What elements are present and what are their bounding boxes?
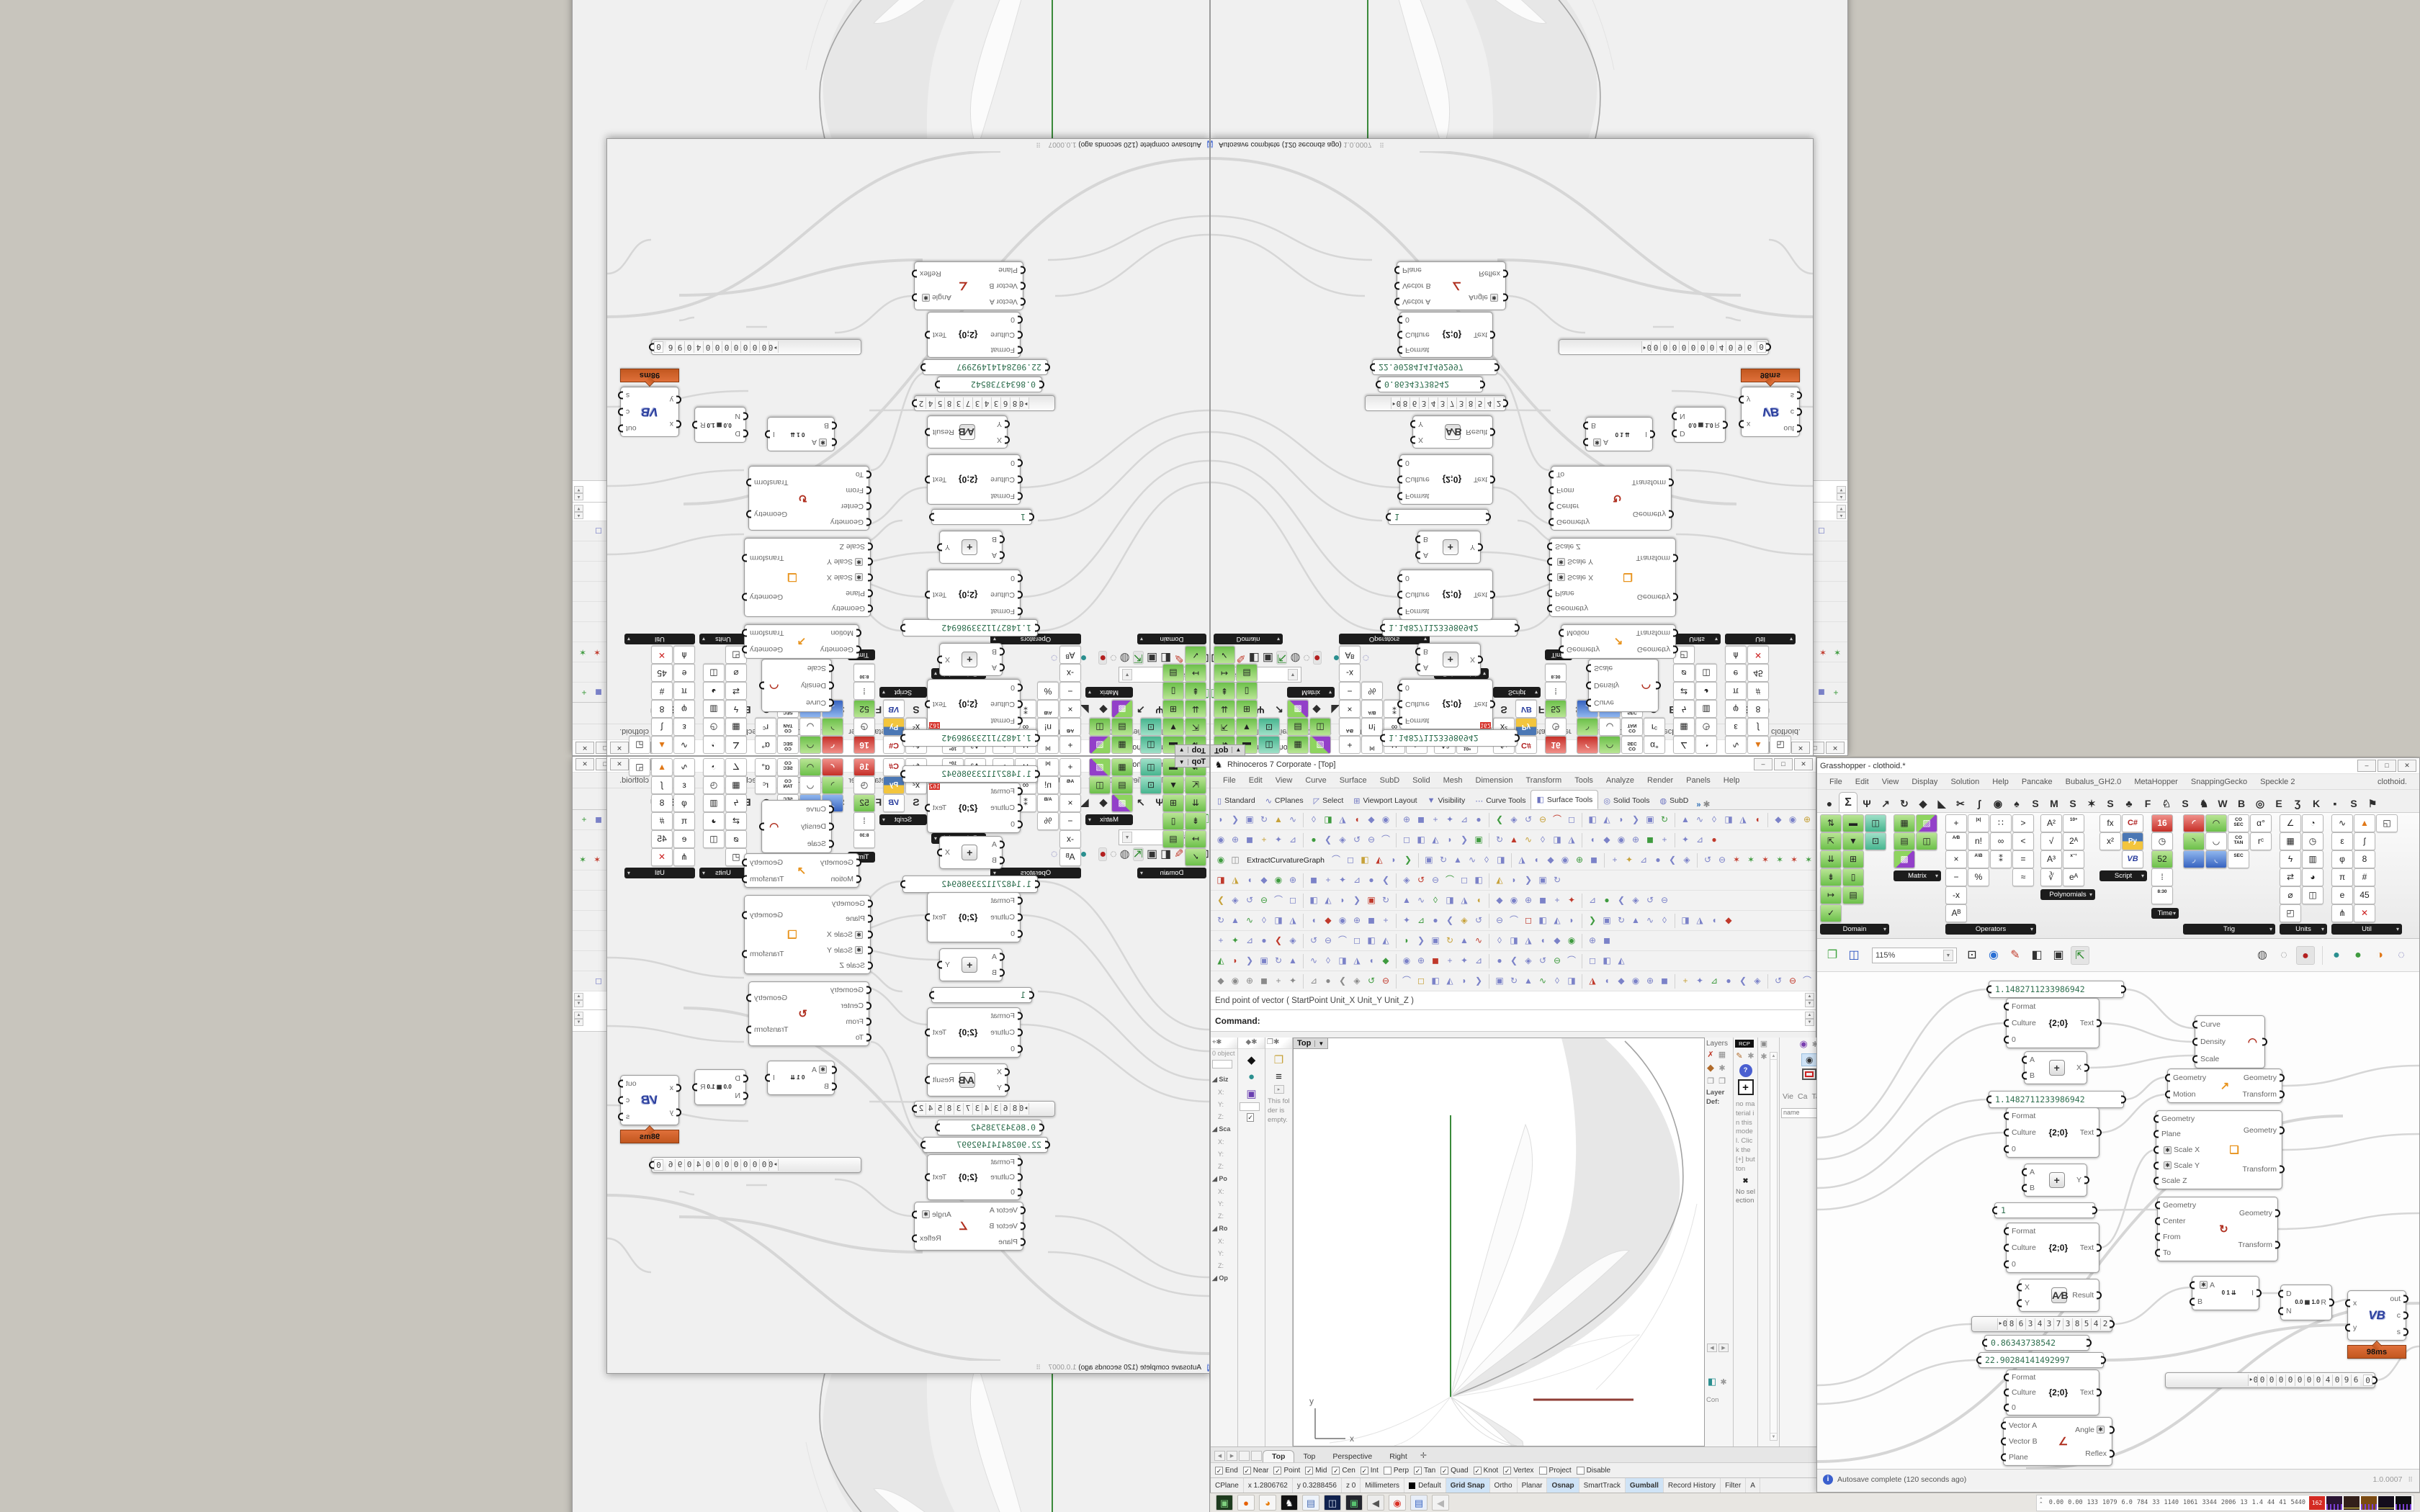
gh-component-button[interactable]: 45 (2354, 886, 2375, 904)
menu-item-analyze[interactable]: Analyze (1600, 776, 1641, 785)
gh-input-to[interactable]: To (1556, 470, 1564, 479)
camera-icon[interactable]: ◉ (1801, 1053, 1817, 1066)
gh-component-button[interactable]: A² (2040, 814, 2062, 832)
toolbar-button[interactable]: ↺ (1365, 974, 1379, 988)
gh-input-vector-a[interactable]: Vector A (990, 297, 1018, 306)
gh-component-button[interactable]: -x (1339, 664, 1361, 682)
toolbar-button[interactable]: ◈ (1229, 894, 1242, 907)
toolbar-button[interactable]: ◊ (1708, 813, 1721, 827)
gh-component-button[interactable]: ◜ (822, 758, 843, 776)
status-default[interactable]: Default (1404, 1478, 1446, 1493)
toolbar-button[interactable]: ◉ (1379, 813, 1393, 827)
gh-component-button[interactable]: -x (1945, 886, 1967, 904)
gh-input-0[interactable]: 0 (1010, 1188, 1015, 1197)
gh-input-curve[interactable]: Curve (806, 805, 826, 814)
gh-canvas[interactable]: 1.1482711233986942FormatCulture0Text{2;0… (607, 149, 1209, 648)
gh-input-b[interactable]: B (1591, 422, 1596, 431)
toolbar-button[interactable]: ↻ (1443, 934, 1457, 948)
toolbar-button[interactable]: ▣ (1472, 833, 1486, 847)
gh-component-button[interactable]: % (1968, 868, 1989, 886)
gh-toolbar-icon[interactable]: ◍ (1120, 652, 1130, 664)
command-scroll-arrows[interactable]: ▲▼ (1837, 486, 1846, 500)
ribbon-group-label-script[interactable]: Script▾ (1493, 687, 1541, 698)
toolbar-tab-visibility[interactable]: ▼Visibility (1422, 792, 1471, 809)
gh-component-button[interactable]: ▲ (651, 758, 673, 776)
gh-component-button[interactable]: ▥ (2302, 850, 2323, 868)
toolbar-button[interactable]: ↻ (1436, 853, 1450, 867)
menu-item-file[interactable]: File (1823, 778, 1849, 786)
toolbar-button[interactable]: ✶ (1758, 853, 1772, 867)
toolbar-button[interactable]: ◉ (1214, 853, 1228, 867)
gh-input-vector-b[interactable]: Vector B (2009, 1437, 2038, 1446)
toolbar-button[interactable]: ⊕ (1522, 894, 1536, 907)
gh-input-culture[interactable]: Culture (990, 330, 1015, 339)
menu-item-transform[interactable]: Transform (1520, 776, 1569, 785)
gh-toolbar-icon[interactable]: ❐ (1823, 946, 1842, 965)
gh-canvas[interactable]: 1.1482711233986942FormatCulture0Text{2;0… (1817, 972, 2419, 1469)
toolbar-button[interactable]: ▣ (1365, 894, 1379, 907)
gh-category-tab-8[interactable]: ʃ (1970, 795, 1989, 812)
gh-input-from[interactable]: From (1556, 486, 1574, 495)
toolbar-button[interactable]: ◆ (1365, 813, 1379, 827)
gh-component-button[interactable]: × (1339, 700, 1361, 718)
toolbar-button[interactable]: ◗ (1336, 894, 1350, 907)
gh-component-button[interactable]: 2ᴬ (2063, 832, 2084, 850)
gh-component-button[interactable]: ◱ (629, 758, 650, 776)
gh-component-button[interactable]: CO TAN (1621, 718, 1643, 736)
gh-component-button[interactable]: ✓ (1214, 646, 1235, 664)
gh-output-c[interactable]: c (626, 1096, 629, 1104)
gh-component-button[interactable]: − (1059, 682, 1081, 700)
toolbar-button[interactable]: ⌒ (1329, 853, 1343, 867)
gh-component-button[interactable]: ⊡ (1140, 776, 1162, 794)
gh-component-button[interactable]: ∠ (725, 736, 747, 754)
gh-component-button[interactable]: 52 (1545, 700, 1567, 718)
toolbar-button[interactable]: ↻ (1272, 954, 1286, 968)
gh-input-x[interactable]: x (670, 1084, 673, 1092)
gh-component-button[interactable]: ◔ (703, 736, 725, 754)
gh-input-geometry[interactable]: Geometry (832, 604, 865, 613)
toolbar-button[interactable]: ⊖ (1429, 873, 1443, 887)
toolbar-button[interactable]: ⊿ (1243, 934, 1257, 948)
gh-input-format[interactable]: Format (1405, 716, 1429, 725)
ribbon-group-label-operators[interactable]: Operators▾ (1945, 924, 2036, 935)
gh-component-button[interactable]: + (1059, 736, 1081, 754)
gh-component-button[interactable]: % (1037, 682, 1059, 700)
gh-component-button[interactable]: ⋔ (2331, 904, 2353, 922)
gh-component-button[interactable]: ◫ (1089, 718, 1111, 736)
gh-input-density[interactable]: Density (801, 681, 826, 690)
gh-output-angle[interactable]: Angle✱ (1469, 294, 1500, 302)
close-button[interactable]: ✕ (1826, 742, 1845, 754)
gh-input-x[interactable]: x (670, 420, 673, 428)
gh-input-n[interactable]: N (735, 1092, 740, 1100)
gh-output-y[interactable]: Y (945, 960, 950, 969)
gh-component-button[interactable]: ε (1725, 718, 1747, 736)
toolbar-button[interactable]: + (1429, 813, 1443, 827)
toolbar-button[interactable]: ◻ (1522, 914, 1536, 927)
gh-component-button[interactable]: ◱ (2376, 814, 2398, 832)
toolbar-button[interactable]: ⊖ (1493, 914, 1507, 927)
toolbar-button[interactable]: ◻ (1400, 833, 1414, 847)
display-mode-icon[interactable]: ◧✱ (1706, 1375, 1729, 1389)
toolbar-button[interactable]: ↺ (1350, 833, 1364, 847)
gh-component-button[interactable]: ✕ (651, 848, 673, 866)
gh-output-reflex[interactable]: Reflex (920, 270, 941, 279)
gh-component-button[interactable]: CO TAN (2228, 832, 2249, 850)
osnap-toggle-int[interactable]: ✓Int (1361, 1467, 1379, 1475)
ribbon-group-label-domain[interactable]: Domain▾ (1137, 634, 1206, 644)
gh-panel-node[interactable]: 0.86343738542 (937, 1120, 1042, 1135)
toolbar-button[interactable]: ✶ (576, 853, 590, 867)
gh-component-button[interactable]: e (673, 664, 695, 682)
gh-component-button[interactable]: ▨ (1916, 814, 1937, 832)
gh-component-button[interactable]: ◫ (1140, 758, 1162, 776)
gh-output-transform[interactable]: Transform (750, 629, 784, 638)
menu-item-pancake[interactable]: Pancake (2015, 778, 2059, 786)
gh-input-a[interactable]: ✱A (2197, 1281, 2215, 1290)
toolbar-button[interactable]: ⊖ (1379, 974, 1393, 988)
new-layer-icon[interactable]: ❐ (1706, 1076, 1716, 1086)
gh-category-tab-19[interactable]: S (2176, 795, 2195, 812)
toolbar-button[interactable]: ⌒ (1336, 934, 1350, 948)
rhino-command-prompt[interactable]: Command: ▲▼ (1211, 1010, 1816, 1032)
gh-component-button[interactable]: ✓ (1185, 646, 1206, 664)
gh-component-button[interactable]: 52 (2151, 850, 2173, 868)
gh-component-button[interactable]: ⇄ (725, 682, 747, 700)
toolbar-button[interactable]: ⊕ (1586, 934, 1600, 948)
gh-component-button[interactable]: 10⁸ (2063, 814, 2084, 832)
gh-component-button[interactable]: ✕ (1747, 646, 1769, 664)
gh-input-plane[interactable]: Plane (2161, 1130, 2181, 1138)
toolbar-button[interactable]: ◫ (1229, 853, 1242, 867)
toolbar-button[interactable]: ◨ (1272, 914, 1286, 927)
gh-component-button[interactable]: ◔ (2302, 814, 2323, 832)
gh-component-button[interactable]: ε (2331, 832, 2353, 850)
command-scroll-arrows[interactable]: ▲▼ (1805, 1012, 1814, 1026)
toolbar-button[interactable]: + (1379, 914, 1393, 927)
gh-input-center[interactable]: Center (841, 1002, 864, 1010)
gh-component-button[interactable]: 16 (853, 736, 875, 754)
gh-component-button[interactable]: ↦ (1820, 886, 1842, 904)
gh-component-button[interactable]: ⁞ (853, 812, 875, 830)
gh-input-scale-y[interactable]: ✱Scale Y (827, 557, 865, 566)
gh-output-text[interactable]: Text (1474, 475, 1487, 484)
toolbar-button[interactable]: ◈ (1458, 914, 1471, 927)
gh-output-i[interactable]: I (1645, 430, 1647, 438)
toolbar-button[interactable]: ◖ (1243, 873, 1257, 887)
gh-input-0[interactable]: 0 (1010, 683, 1015, 692)
toolbar-button[interactable]: ◻ (592, 524, 606, 538)
gh-component-button[interactable]: ⊞ (1236, 700, 1258, 718)
gh-output-out[interactable]: out (1783, 424, 1794, 433)
gh-input-0[interactable]: 0 (2012, 1035, 2016, 1044)
gh-output-r[interactable]: R (2321, 1298, 2326, 1307)
gh-toolbar-icon[interactable]: ● (1080, 848, 1088, 860)
gh-component-button[interactable]: − (1945, 868, 1967, 886)
minimize-button[interactable]: – (2357, 760, 2376, 772)
gh-component-button[interactable]: 8 (651, 700, 673, 718)
panel-header-icon[interactable]: ⌖✱ (1211, 1038, 1237, 1049)
toolbar-button[interactable]: ↻ (1658, 813, 1672, 827)
toolbar-button[interactable]: ✶ (1787, 853, 1801, 867)
gh-component-button[interactable]: ◫ (703, 830, 725, 848)
gh-output-transform[interactable]: Transform (750, 554, 784, 562)
gh-input-format[interactable]: Format (2012, 1002, 2035, 1011)
gh-number-slider[interactable]: ‣086343738542 (914, 395, 1055, 411)
gh-output-text[interactable]: Text (933, 700, 946, 708)
ribbon-group-label-util[interactable]: Util▾ (1725, 634, 1796, 644)
toolbar-button[interactable]: ● (1722, 974, 1736, 988)
gh-input-culture[interactable]: Culture (990, 913, 1015, 922)
toolbar-button[interactable]: ◉ (1565, 934, 1579, 948)
gh-output-angle[interactable]: Angle✱ (920, 294, 951, 302)
gh-input-format[interactable]: Format (1405, 346, 1429, 354)
toolbar-button[interactable]: ∿ (1465, 853, 1479, 867)
gh-input-to[interactable]: To (856, 1033, 864, 1042)
gh-component-button[interactable]: ✓ (1185, 848, 1206, 866)
gh-input-scale-x[interactable]: ✱Scale X (2161, 1146, 2200, 1154)
toolbar-button[interactable]: ◨ (1565, 974, 1579, 988)
gh-input-format[interactable]: Format (991, 346, 1015, 354)
gh-input-format[interactable]: Format (2012, 1227, 2035, 1236)
gh-category-tab-3[interactable]: ↗ (1876, 795, 1895, 812)
viewport-title-dropdown-icon[interactable]: ▼ (1232, 747, 1241, 754)
gh-output-result[interactable]: Result (933, 428, 954, 436)
gh-input-0[interactable]: 0 (2012, 1260, 2016, 1269)
gh-component-button[interactable]: ◷ (853, 718, 875, 736)
ribbon-group-label-script[interactable]: Script▾ (879, 687, 927, 698)
gh-input-from[interactable]: From (2163, 1233, 2181, 1241)
gh-input-motion[interactable]: Motion (830, 875, 853, 883)
gh-component-button[interactable]: ⇱ (1185, 776, 1206, 794)
osnap-toggle-disable[interactable]: Disable (1577, 1467, 1610, 1475)
gh-output-text[interactable]: Text (2080, 1388, 2094, 1397)
toolbar-button[interactable]: ↻ (1551, 873, 1564, 887)
gh-component-button[interactable]: ⇟ (1820, 868, 1842, 886)
toolbar-button[interactable]: ◭ (1429, 833, 1443, 847)
gh-panel-node[interactable]: 1 (1388, 509, 1489, 525)
gh-panel-node[interactable]: 22.90284141492997 (923, 1137, 1048, 1153)
gh-category-tab-18[interactable]: ♘ (2157, 795, 2176, 812)
gh-input-b[interactable]: B (992, 856, 997, 865)
toolbar-button[interactable]: + (1608, 853, 1621, 867)
toolbar-button[interactable]: ❮ (1322, 833, 1335, 847)
gh-category-tab-23[interactable]: ◎ (2251, 795, 2269, 812)
toolbar-button[interactable]: ◈ (1507, 813, 1521, 827)
gh-output-text[interactable]: Text (933, 475, 946, 484)
toolbar-button[interactable]: ❯ (1522, 873, 1536, 887)
gh-component-button[interactable]: ▦ (1673, 718, 1695, 736)
gh-input-culture[interactable]: Culture (2012, 1243, 2036, 1252)
gh-component-button[interactable]: 8:30 (2151, 886, 2173, 904)
toolbar-button[interactable]: ◭ (1493, 873, 1507, 887)
gh-input-d[interactable]: D (2286, 1290, 2292, 1298)
gh-output-out[interactable]: out (626, 424, 637, 433)
gh-toolbar-icon[interactable]: ◌ (2392, 946, 2411, 965)
toolbar-button[interactable]: + (1272, 974, 1286, 988)
gh-output-geometry[interactable]: Geometry (1637, 593, 1670, 601)
toolbar-button[interactable]: ∿ (1286, 813, 1300, 827)
toolbar-button[interactable]: ◈ (1350, 974, 1364, 988)
gh-component-button[interactable]: ⁞ (853, 682, 875, 700)
gh-component-button[interactable]: π (673, 812, 695, 830)
toolbar-button[interactable]: ◖ (1365, 954, 1379, 968)
toolbar-button[interactable]: ❮ (1214, 894, 1228, 907)
toolbar-button[interactable]: ✦ (1622, 853, 1636, 867)
toolbar-button[interactable]: ◖ (1307, 914, 1321, 927)
toolbar-button[interactable]: ◧ (1365, 934, 1379, 948)
toolbar-button[interactable]: ▲ (1286, 954, 1300, 968)
toolbar-button[interactable]: ❯ (1629, 813, 1643, 827)
gh-component-button[interactable]: |x| (1968, 814, 1989, 832)
gh-input-a[interactable]: ✱A (812, 1066, 829, 1074)
toolbar-button[interactable]: ◖ (1708, 914, 1721, 927)
toolbar-button[interactable]: ▣ (1600, 914, 1614, 927)
sphere-icon[interactable]: ● (1238, 1071, 1265, 1083)
gh-component-button[interactable]: ▤ (1894, 832, 1915, 850)
ribbon-group-label-script[interactable]: Script▾ (2099, 870, 2147, 881)
gh-input-0[interactable]: 0 (2012, 1403, 2016, 1412)
gh-input-culture[interactable]: Culture (1405, 700, 1430, 708)
gh-toolbar-icon[interactable]: ◍ (1120, 848, 1130, 860)
gh-number-slider[interactable]: ‣0000000040960 (1559, 339, 1769, 355)
toolbar-button[interactable]: ◗ (1443, 833, 1457, 847)
gh-component-button[interactable]: rᶜ (755, 776, 776, 794)
gh-input-from[interactable]: From (846, 486, 864, 495)
gh-input-culture[interactable]: Culture (990, 1173, 1015, 1182)
gh-output-geometry[interactable]: Geometry (750, 593, 783, 601)
gh-output-text[interactable]: Text (933, 913, 946, 922)
toolbar-button[interactable]: ◧ (1358, 853, 1371, 867)
gh-component-button[interactable]: ϟ (2280, 850, 2301, 868)
layer-state-icon[interactable]: ✗ (1706, 1050, 1716, 1060)
toolbar-button[interactable]: ▲ (1522, 974, 1536, 988)
gh-input-scale-y[interactable]: ✱Scale Y (1555, 557, 1593, 566)
gh-toolbar-icon[interactable]: ◌ (1110, 848, 1117, 860)
toolbar-button[interactable]: ⊕ (1286, 873, 1300, 887)
color-wheel-icon[interactable]: ◉ (1798, 1039, 1809, 1049)
taskbar-app-8[interactable]: ◉ (1389, 1495, 1406, 1511)
taskbar-app-3[interactable]: ♞ (1281, 1495, 1298, 1511)
menu-item-surface[interactable]: Surface (1333, 776, 1373, 785)
gh-component-button[interactable]: ◷ (2302, 832, 2323, 850)
gh-component-button[interactable]: % (1037, 812, 1059, 830)
gh-category-tab-0[interactable]: ● (1820, 795, 1839, 812)
gh-component-button[interactable]: n! (1361, 718, 1383, 736)
toolbar-button[interactable]: ◉ (1615, 833, 1628, 847)
gh-component-button[interactable]: ▩ (1111, 794, 1133, 812)
toolbar-button[interactable]: ❯ (1415, 934, 1428, 948)
menu-item-file[interactable]: File (1216, 776, 1242, 785)
toolbar-button[interactable]: ◈ (1336, 833, 1350, 847)
gh-output-c[interactable]: c (2397, 1311, 2401, 1320)
gh-component-button[interactable]: CO SEC (777, 758, 799, 776)
toolbar-button[interactable]: ◊ (1551, 974, 1564, 988)
gh-input-y[interactable]: Y (997, 420, 1002, 428)
gh-input-plane[interactable]: Plane (998, 1238, 1018, 1246)
viewport-title[interactable]: Top ▼ (1175, 757, 1209, 768)
gh-component-button[interactable]: ⊡ (1258, 718, 1280, 736)
gh-output-out[interactable]: out (626, 1079, 637, 1088)
gh-output-text[interactable]: Text (933, 330, 946, 339)
gh-output-transform[interactable]: Transform (750, 875, 784, 883)
gh-output-result[interactable]: Result (2072, 1291, 2094, 1300)
toolbar-button[interactable]: ◨ (1214, 873, 1228, 887)
gh-category-tab-17[interactable]: F (2138, 795, 2157, 812)
more-tabs-chevron[interactable]: » (1696, 801, 1700, 809)
toolbar-button[interactable]: ∿ (1307, 954, 1321, 968)
menu-item-subd[interactable]: SubD (1373, 776, 1407, 785)
gh-component-button[interactable]: Py (883, 718, 905, 736)
gh-component-button[interactable]: ∿ (673, 758, 695, 776)
gh-component-button[interactable]: ⇊ (1214, 700, 1235, 718)
gh-input-y[interactable]: y (670, 1108, 673, 1117)
gh-component-button[interactable]: ⇅ (1820, 814, 1842, 832)
toolbar-button[interactable]: ◼ (1815, 685, 1829, 699)
gh-input-format[interactable]: Format (991, 1158, 1015, 1166)
toolbar-button[interactable]: ◮ (1515, 853, 1528, 867)
gh-component-button[interactable]: Py (883, 776, 905, 794)
gh-input-b[interactable]: B (992, 535, 997, 544)
gh-input-plane[interactable]: Plane (846, 914, 865, 923)
gh-component-button[interactable]: 16 (853, 758, 875, 776)
toolbar-button[interactable]: ◖ (1536, 934, 1550, 948)
gh-panel-node[interactable]: 1.1482711233986942 (1989, 981, 2124, 998)
gh-component-button[interactable]: ▤ (1287, 718, 1309, 736)
panel-header-icon[interactable]: ◆✱ (1238, 1038, 1265, 1049)
gh-component-button[interactable]: rᶜ (1644, 718, 1665, 736)
gh-component-button[interactable]: + (1945, 814, 1967, 832)
gh-output-out[interactable]: out (2390, 1295, 2401, 1303)
gh-component-button[interactable]: ◜ (1577, 736, 1598, 754)
toolbar-button[interactable]: ⊕ (1572, 853, 1586, 867)
toolbar-button[interactable]: ◭ (1600, 813, 1614, 827)
ribbon-group-label-units[interactable]: Units▾ (1673, 634, 1721, 644)
close-button[interactable]: ✕ (575, 742, 594, 754)
gh-component-button[interactable]: ⇊ (1185, 794, 1206, 812)
toolbar-button[interactable]: ✦ (1272, 833, 1286, 847)
gh-component-button[interactable]: × (1059, 794, 1081, 812)
toolbar-button[interactable]: ❮ (1336, 974, 1350, 988)
toolbar-button[interactable]: ◧ (1307, 894, 1321, 907)
gh-output-geometry[interactable]: Geometry (2244, 1126, 2277, 1135)
toolbar-button[interactable]: ❮ (1493, 813, 1507, 827)
gh-component-button[interactable]: n! (1037, 718, 1059, 736)
toolbar-button[interactable]: ◧ (1586, 813, 1600, 827)
gh-component-button[interactable]: ◷ (703, 776, 725, 794)
gh-component-button[interactable]: A⁄B (1059, 718, 1081, 736)
viewport-tab-scroll-left[interactable]: ◀ (1214, 1451, 1225, 1461)
gh-input-plane[interactable]: Plane (2009, 1453, 2028, 1462)
gh-component-button[interactable]: ⊡ (1140, 718, 1162, 736)
gh-component-node[interactable]: Vector AVector BPlaneAngle✱Reflex (914, 261, 1023, 310)
gh-component-button[interactable]: Aᴮ (1339, 646, 1361, 664)
gh-component-button[interactable]: ∿ (1725, 736, 1747, 754)
gh-output-transform[interactable]: Transform (2243, 1165, 2277, 1174)
ribbon-group-label-time[interactable]: Time▾ (2151, 908, 2179, 919)
gh-output-text[interactable]: Text (933, 804, 946, 812)
gh-component-button[interactable]: ▦ (1111, 736, 1133, 754)
gh-output-text[interactable]: Text (1474, 700, 1487, 708)
menu-item-snappinggecko[interactable]: SnappingGecko (2184, 778, 2254, 786)
gh-component-button[interactable]: ◷ (703, 718, 725, 736)
gh-output-transform[interactable]: Transform (2238, 1241, 2272, 1249)
gh-input-a[interactable]: A (2030, 1056, 2035, 1064)
gh-input-b[interactable]: B (2030, 1184, 2035, 1192)
gh-component-button[interactable]: ⁞ (1545, 682, 1567, 700)
gh-input-scale-z[interactable]: Scale Z (1555, 542, 1581, 551)
